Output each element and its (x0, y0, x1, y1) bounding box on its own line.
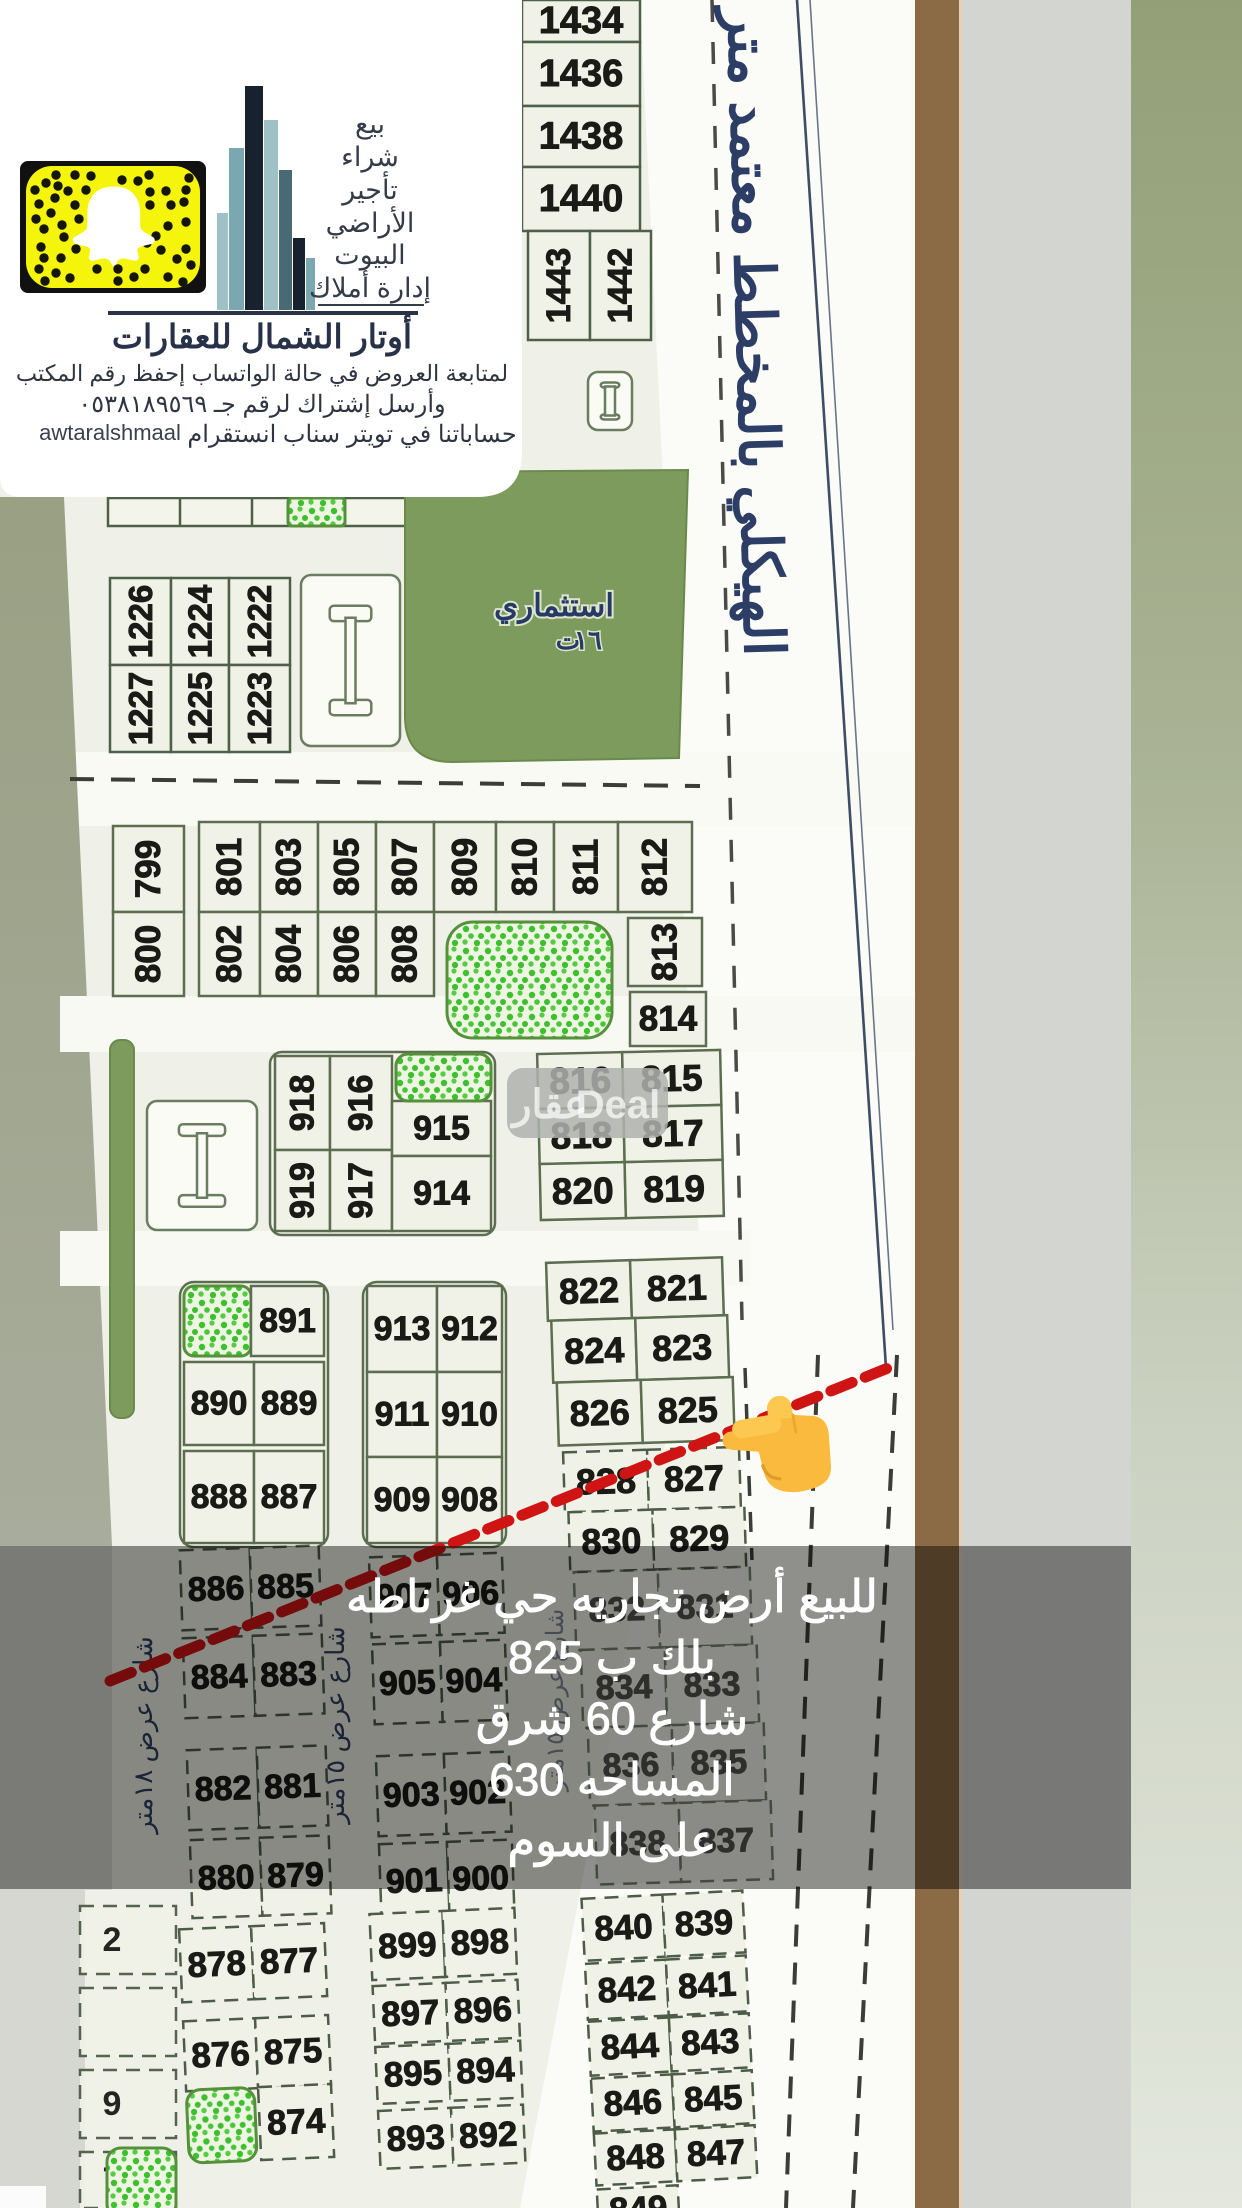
svg-text:913: 913 (374, 1310, 431, 1348)
svg-text:845: 845 (683, 2078, 743, 2120)
svg-text:916: 916 (342, 1075, 380, 1132)
svg-text:807: 807 (386, 838, 425, 896)
svg-text:810: 810 (506, 838, 545, 896)
svg-text:847: 847 (686, 2132, 746, 2174)
svg-text:914: 914 (413, 1175, 470, 1213)
svg-text:896: 896 (453, 1990, 513, 2032)
svg-text:808: 808 (386, 925, 425, 983)
svg-text:1438: 1438 (539, 116, 624, 158)
svg-text:803: 803 (270, 838, 309, 896)
svg-text:844: 844 (600, 2026, 661, 2068)
svg-text:877: 877 (259, 1940, 319, 1982)
svg-text:1223: 1223 (241, 672, 278, 745)
svg-text:811: 811 (567, 839, 606, 895)
svg-text:تأجير: تأجير (340, 171, 397, 206)
svg-text:809: 809 (446, 838, 485, 896)
svg-text:1226: 1226 (122, 585, 159, 658)
svg-text:874: 874 (266, 2101, 327, 2143)
svg-text:820: 820 (551, 1170, 614, 1212)
svg-text:802: 802 (210, 925, 249, 983)
svg-text:889: 889 (261, 1385, 318, 1423)
svg-text:875: 875 (263, 2031, 323, 2073)
svg-text:839: 839 (674, 1903, 734, 1945)
svg-text:1227: 1227 (122, 672, 159, 745)
svg-text:على السوم: على السوم (507, 1815, 716, 1867)
svg-text:البيوت: البيوت (334, 240, 405, 271)
svg-text:بيع: بيع (355, 109, 385, 140)
svg-text:1222: 1222 (241, 585, 278, 658)
svg-text:801: 801 (210, 838, 249, 896)
svg-text:892: 892 (458, 2114, 518, 2156)
svg-text:893: 893 (386, 2118, 446, 2160)
svg-text:917: 917 (342, 1162, 380, 1219)
svg-text:805: 805 (328, 838, 367, 896)
svg-text:894: 894 (455, 2050, 516, 2092)
svg-text:لمتابعة العروض في حالة الواتسا: لمتابعة العروض في حالة الواتساب إحفظ رقم… (16, 361, 508, 388)
svg-text:awtaralshmaal: awtaralshmaal (39, 420, 181, 445)
svg-text:806: 806 (328, 925, 367, 983)
svg-text:876: 876 (191, 2034, 251, 2076)
svg-text:846: 846 (603, 2082, 663, 2124)
svg-text:800: 800 (129, 925, 168, 983)
svg-text:919: 919 (284, 1162, 322, 1219)
svg-text:915: 915 (413, 1110, 470, 1148)
svg-text:841: 841 (677, 1964, 737, 2006)
svg-text:822: 822 (558, 1269, 619, 1312)
svg-text:أوتار الشمال للعقارات: أوتار الشمال للعقارات (112, 314, 412, 357)
svg-text:1436: 1436 (539, 53, 624, 95)
svg-text:١٦: ١٦ (574, 625, 602, 655)
svg-text:1442: 1442 (602, 248, 640, 324)
svg-text:استثماري: استثماري (494, 588, 614, 625)
svg-text:إدارة أملاك: إدارة أملاك (309, 270, 431, 304)
svg-text:842: 842 (597, 1969, 657, 2011)
svg-text:912: 912 (441, 1310, 498, 1348)
svg-text:849: 849 (608, 2188, 668, 2208)
svg-text:909: 909 (374, 1481, 431, 1519)
svg-text:1224: 1224 (182, 584, 219, 658)
svg-text:826: 826 (569, 1391, 630, 1434)
svg-text:819: 819 (643, 1168, 706, 1210)
svg-text:1225: 1225 (182, 672, 219, 745)
svg-text:821: 821 (646, 1266, 707, 1309)
svg-text:814: 814 (639, 1000, 698, 1039)
svg-text:804: 804 (270, 924, 309, 983)
svg-text:823: 823 (652, 1326, 713, 1369)
svg-text:911: 911 (375, 1396, 430, 1434)
svg-text:المساحه 630: المساحه 630 (489, 1754, 735, 1805)
svg-text:824: 824 (564, 1329, 625, 1372)
svg-text:843: 843 (680, 2021, 740, 2063)
svg-text:890: 890 (191, 1385, 248, 1423)
svg-text:شراء: شراء (341, 142, 399, 173)
svg-text:887: 887 (261, 1478, 318, 1516)
svg-text:891: 891 (259, 1302, 316, 1340)
svg-text:1440: 1440 (539, 178, 624, 220)
svg-text:878: 878 (187, 1944, 247, 1986)
svg-text:2: 2 (103, 1921, 122, 1959)
svg-text:شارع 60 شرق: شارع 60 شرق (476, 1693, 749, 1745)
svg-text:895: 895 (383, 2053, 443, 2095)
svg-text:Deal: Deal (576, 1083, 661, 1127)
svg-text:848: 848 (605, 2136, 665, 2178)
svg-text:وأرسل إشتراك لرقم جـ ٥٣٨١٨٩٥٦: وأرسل إشتراك لرقم جـ ٥٣٨١٨٩٥٦٩‏٠ (78, 387, 445, 418)
svg-text:بلك ب 825: بلك ب 825 (508, 1632, 716, 1683)
svg-text:910: 910 (441, 1396, 498, 1434)
svg-text:918: 918 (284, 1075, 322, 1132)
svg-text:840: 840 (593, 1907, 653, 1949)
svg-text:888: 888 (191, 1478, 248, 1516)
svg-text:825: 825 (657, 1389, 718, 1432)
svg-text:1434: 1434 (539, 0, 624, 42)
svg-text:812: 812 (636, 838, 675, 896)
svg-text:799: 799 (129, 840, 168, 898)
svg-text:للبيع أرض تجاريه حي غرناطه: للبيع أرض تجاريه حي غرناطه (346, 1567, 878, 1623)
svg-text:الأراضي: الأراضي (326, 206, 415, 239)
svg-text:813: 813 (646, 923, 685, 981)
svg-text:1443: 1443 (540, 248, 578, 324)
svg-text:898: 898 (450, 1922, 510, 1964)
svg-text:899: 899 (377, 1925, 437, 1967)
svg-text:حساباتنا في تويتر سناب انستقرا: حساباتنا في تويتر سناب انستقرام (187, 421, 516, 448)
svg-text:908: 908 (441, 1481, 498, 1519)
svg-text:9: 9 (103, 2085, 122, 2123)
svg-text:897: 897 (380, 1993, 440, 2035)
svg-text:827: 827 (663, 1457, 724, 1500)
